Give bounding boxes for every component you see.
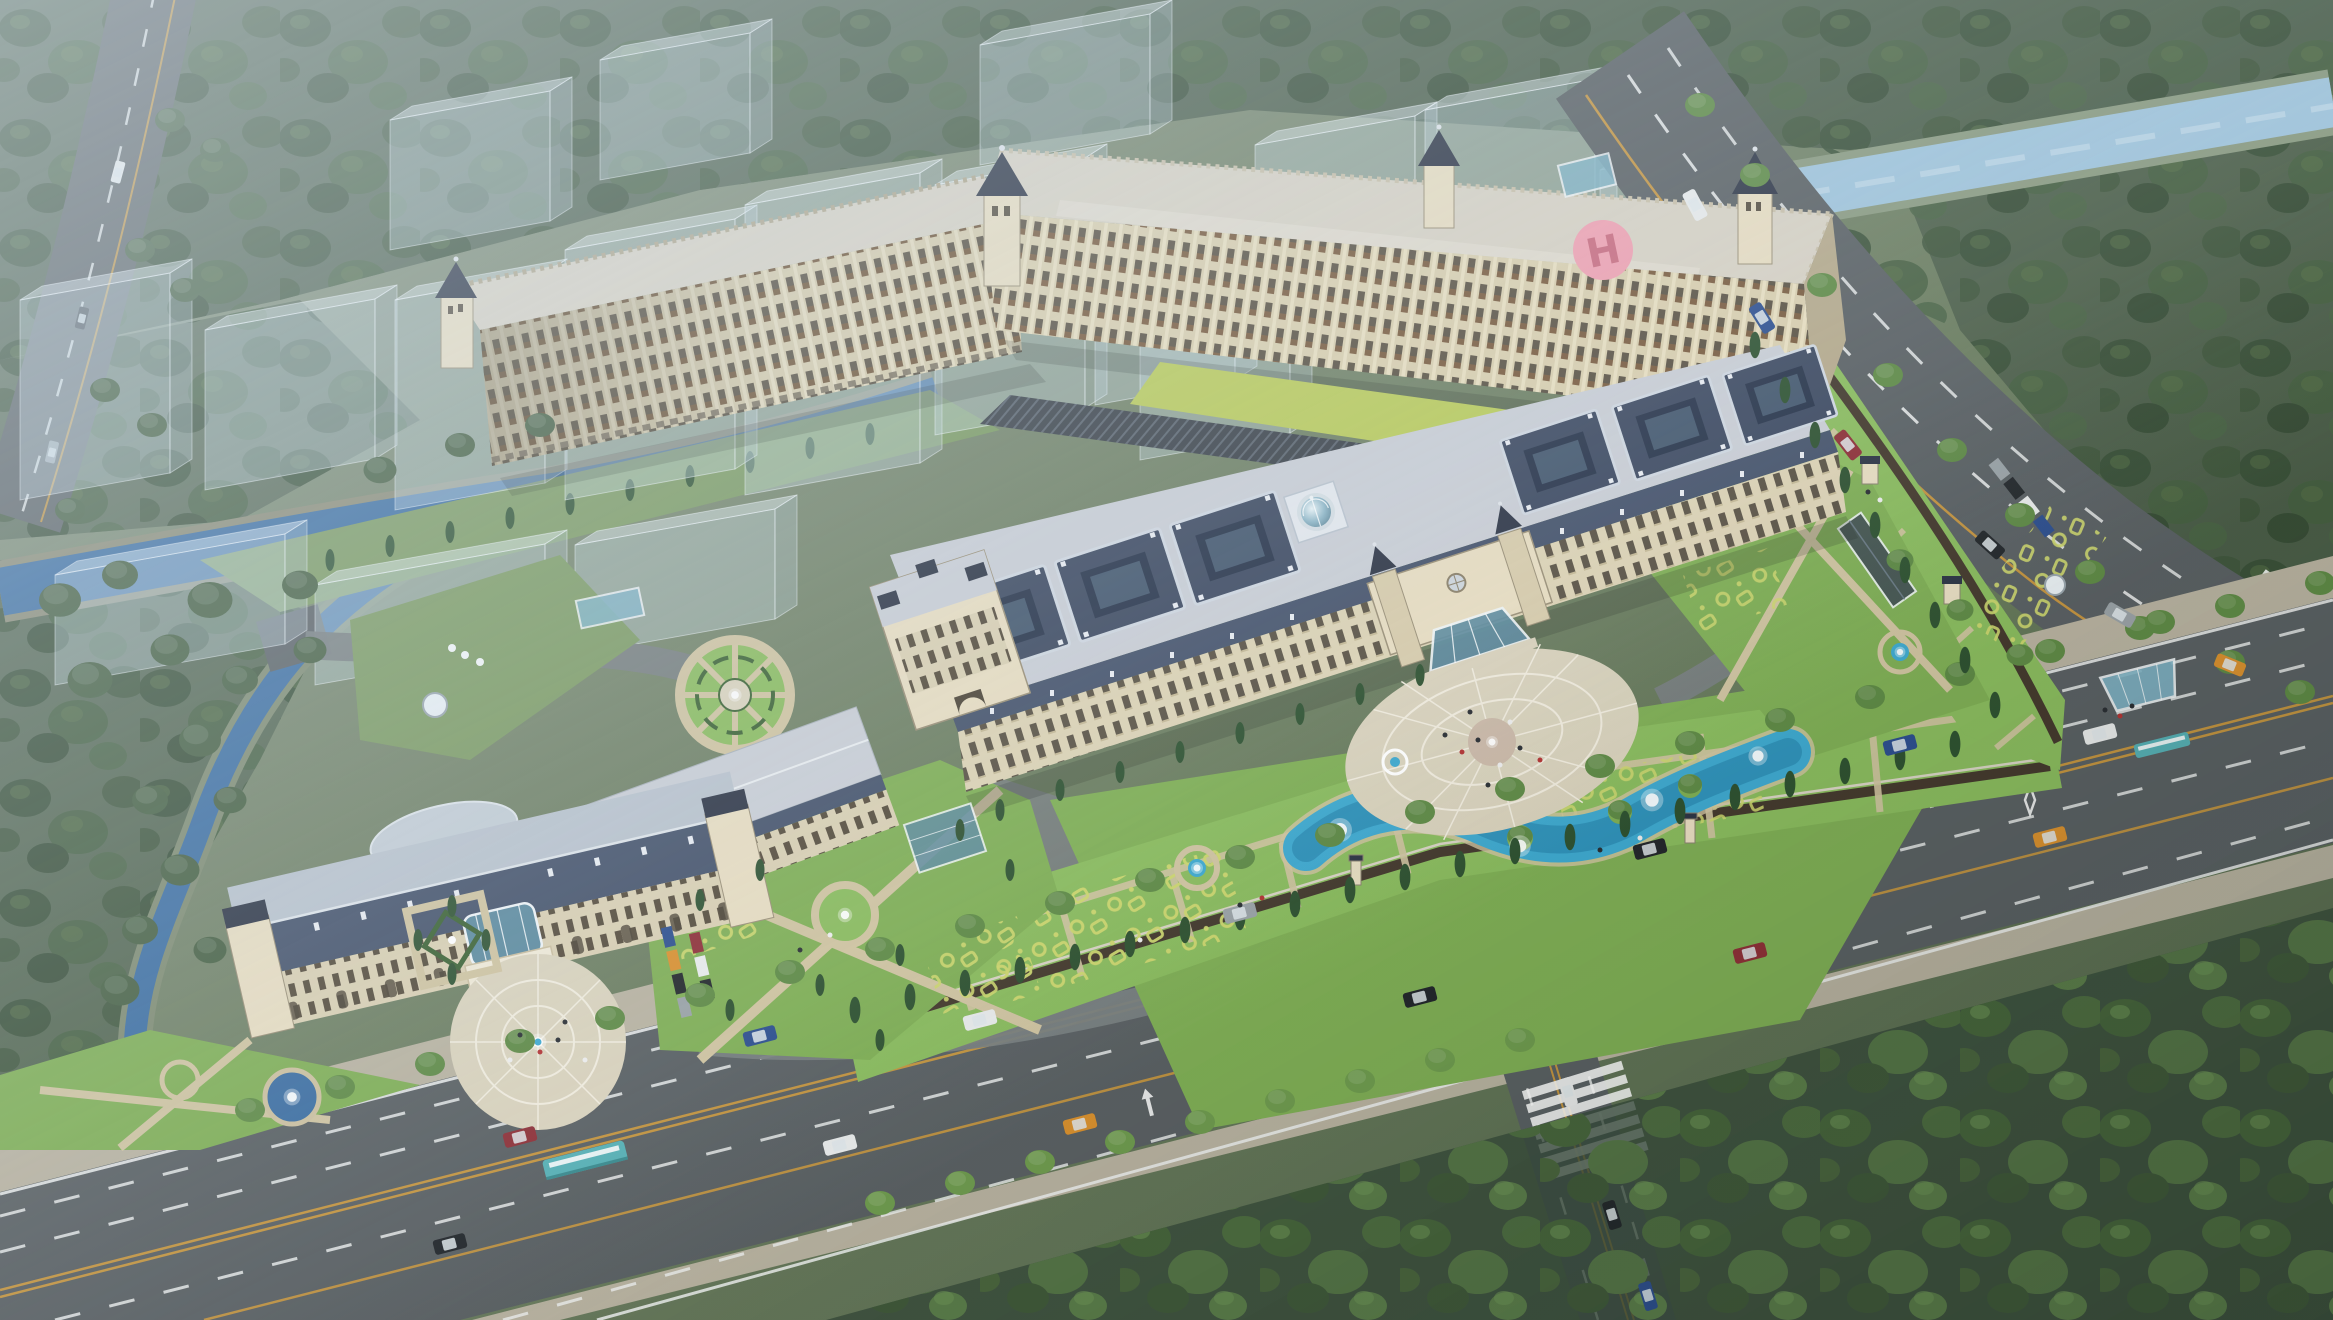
- vignette: [0, 0, 2333, 1320]
- rendering-canvas: H: [0, 0, 2333, 1320]
- aerial-architectural-rendering: H: [0, 0, 2333, 1320]
